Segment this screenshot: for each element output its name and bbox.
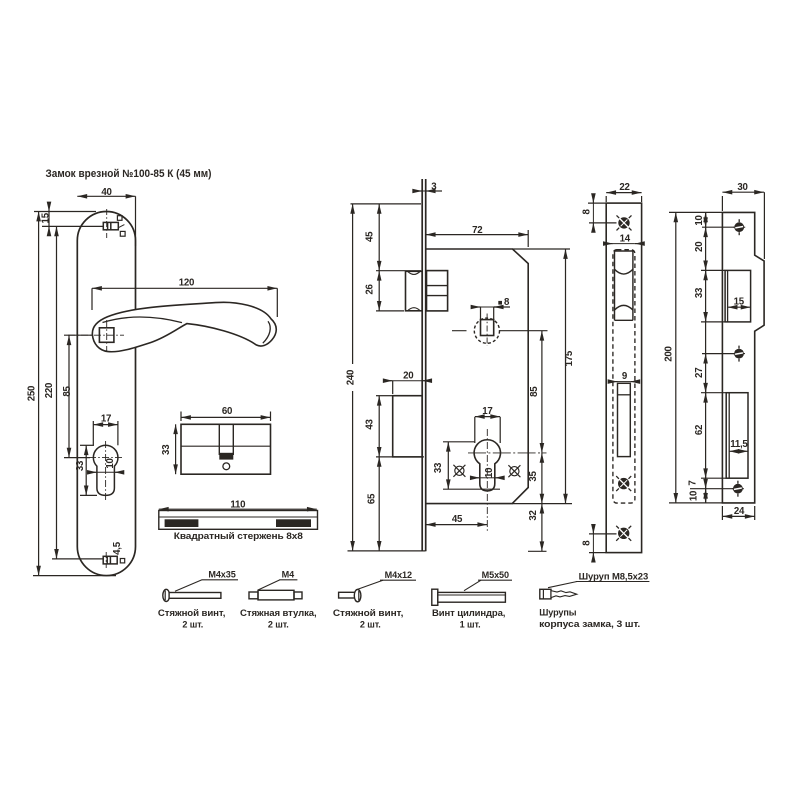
svg-text:175: 175: [564, 350, 575, 366]
svg-text:Замок врезной №100-85 К (45 мм: Замок врезной №100-85 К (45 мм): [46, 168, 212, 180]
svg-text:М4х12: М4х12: [385, 570, 412, 580]
svg-text:72: 72: [472, 225, 482, 236]
svg-text:220: 220: [44, 383, 55, 398]
svg-text:10: 10: [105, 458, 116, 468]
svg-text:45: 45: [452, 514, 463, 525]
svg-text:Квадратный стержень 8х8: Квадратный стержень 8х8: [174, 531, 303, 541]
svg-text:120: 120: [179, 277, 194, 288]
svg-text:8: 8: [504, 297, 510, 308]
svg-text:М4: М4: [282, 570, 295, 580]
svg-text:240: 240: [345, 370, 356, 385]
svg-text:85: 85: [62, 386, 73, 397]
svg-text:200: 200: [664, 346, 675, 361]
svg-text:М4х35: М4х35: [208, 570, 235, 580]
svg-text:2 шт.: 2 шт.: [268, 619, 289, 629]
svg-text:2 шт.: 2 шт.: [360, 620, 381, 630]
svg-text:60: 60: [222, 406, 232, 417]
svg-text:4,5: 4,5: [112, 541, 123, 555]
svg-text:8: 8: [581, 208, 592, 214]
svg-text:20: 20: [694, 242, 705, 252]
svg-text:15: 15: [40, 212, 51, 223]
svg-text:Шуруп М8,5х23: Шуруп М8,5х23: [579, 571, 649, 581]
svg-text:27: 27: [694, 368, 705, 378]
svg-text:7: 7: [688, 480, 699, 485]
svg-text:Стяжная втулка,: Стяжная втулка,: [240, 608, 317, 618]
svg-text:33: 33: [694, 287, 705, 298]
svg-text:М5х50: М5х50: [482, 570, 509, 580]
svg-text:110: 110: [230, 500, 245, 511]
svg-text:20: 20: [403, 371, 413, 382]
svg-text:43: 43: [365, 419, 376, 430]
svg-text:8: 8: [581, 540, 592, 546]
svg-text:10: 10: [694, 215, 705, 225]
svg-text:корпуса замка, 3 шт.: корпуса замка, 3 шт.: [539, 619, 640, 629]
svg-text:32: 32: [528, 510, 539, 520]
svg-text:33: 33: [75, 460, 86, 471]
svg-text:11,5: 11,5: [730, 439, 748, 450]
svg-text:10: 10: [484, 468, 495, 478]
svg-text:Винт цилиндра,: Винт цилиндра,: [432, 608, 505, 618]
svg-text:22: 22: [619, 182, 629, 193]
svg-text:250: 250: [27, 386, 38, 401]
svg-text:33: 33: [433, 462, 444, 473]
svg-text:17: 17: [101, 414, 111, 425]
svg-text:40: 40: [101, 187, 111, 198]
svg-text:14: 14: [620, 233, 631, 244]
svg-text:65: 65: [367, 493, 378, 504]
svg-text:30: 30: [737, 182, 747, 193]
svg-text:2 шт.: 2 шт.: [182, 619, 203, 629]
svg-text:45: 45: [365, 231, 376, 242]
svg-text:Стяжной винт,: Стяжной винт,: [158, 608, 226, 618]
svg-text:15: 15: [734, 296, 745, 307]
svg-text:17: 17: [482, 406, 492, 417]
svg-text:33: 33: [161, 444, 172, 455]
svg-text:10: 10: [688, 491, 699, 501]
svg-text:Стяжной винт,: Стяжной винт,: [333, 608, 403, 618]
svg-text:85: 85: [529, 386, 540, 397]
svg-text:62: 62: [694, 425, 705, 435]
svg-text:26: 26: [365, 284, 376, 295]
svg-text:Шурупы: Шурупы: [539, 607, 577, 617]
svg-text:9: 9: [622, 371, 628, 382]
svg-text:24: 24: [734, 506, 745, 517]
svg-text:35: 35: [528, 471, 539, 482]
svg-text:1 шт.: 1 шт.: [460, 620, 481, 630]
svg-text:3: 3: [431, 181, 437, 192]
